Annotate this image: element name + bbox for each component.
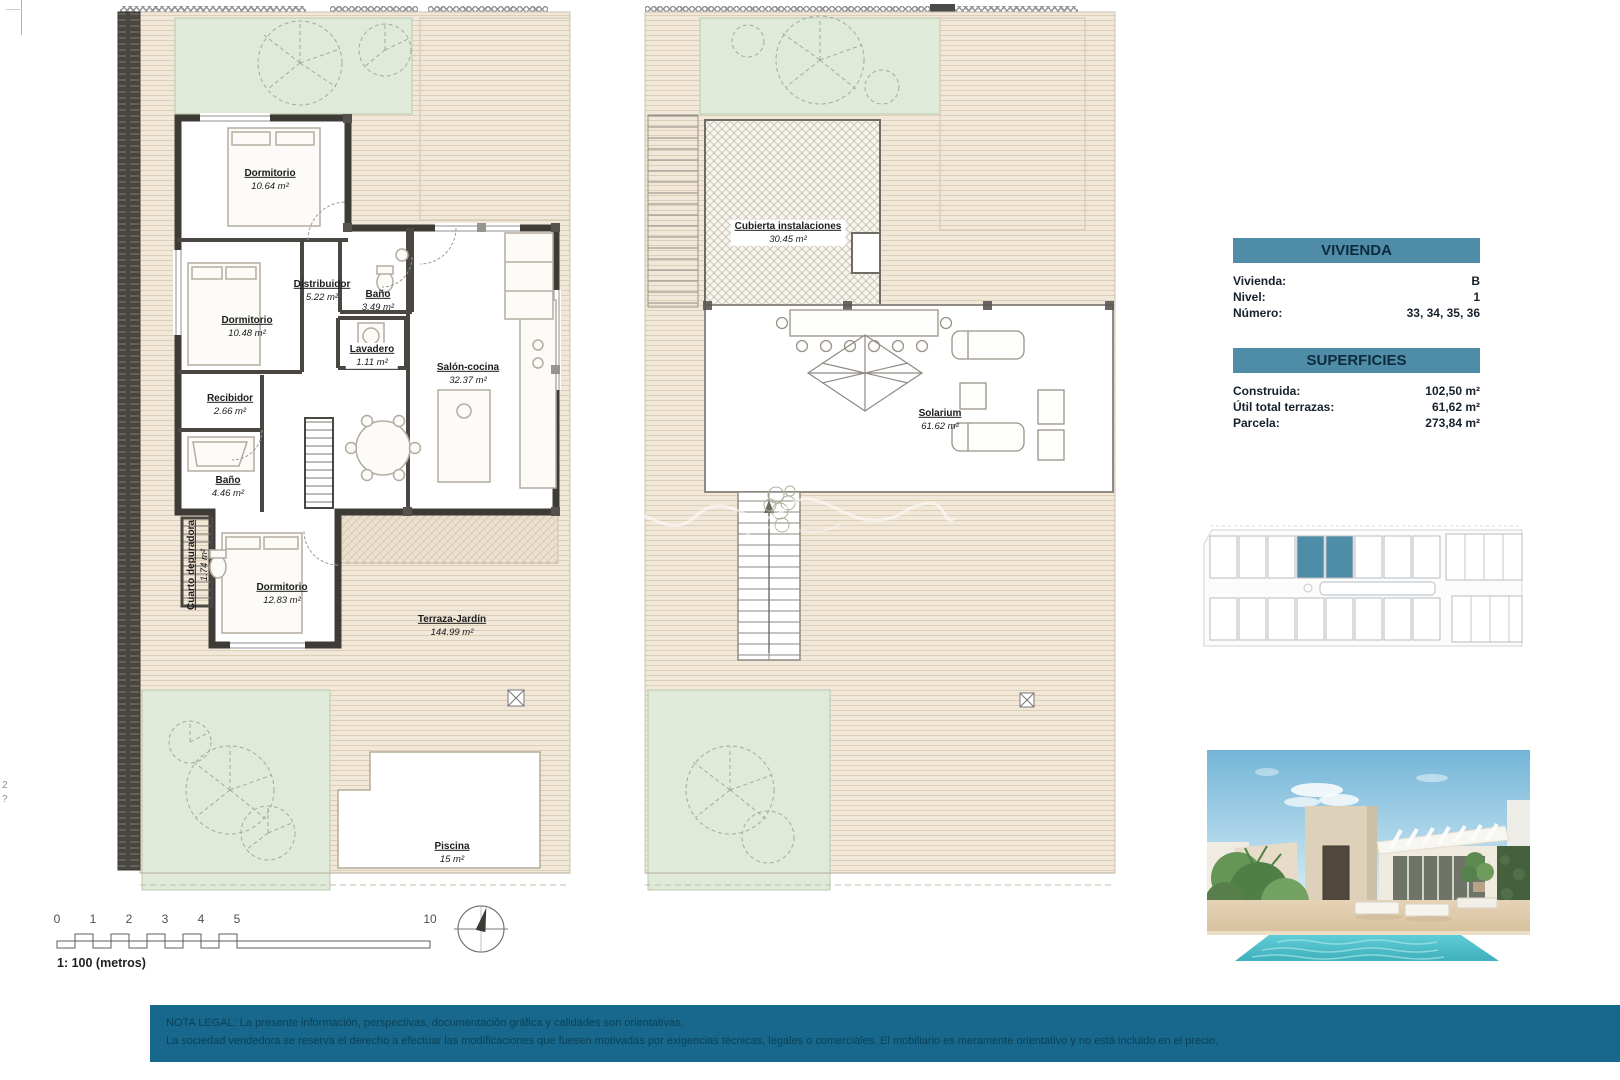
room-label-recibidor: Recibidor 2.66 m²	[207, 393, 253, 417]
site-plan	[1200, 518, 1530, 655]
room-area: 61.62 m²	[919, 420, 962, 432]
row-value: 273,84 m²	[1425, 416, 1480, 430]
villa-render-photo	[1207, 750, 1530, 961]
row-label: Nivel:	[1233, 290, 1266, 304]
room-area: 5.22 m²	[294, 291, 351, 303]
scale-tick: 10	[423, 912, 436, 926]
scale-tick: 1	[90, 912, 97, 926]
room-label-piscina: Piscina 15 m²	[434, 841, 469, 865]
watermark	[600, 478, 960, 558]
row-label: Construida:	[1233, 384, 1300, 398]
scale-bar: 0 1 2 3 4 5 10 1: 100 (metros)	[50, 912, 450, 976]
garden-bottom	[142, 690, 330, 890]
drain-icon	[508, 690, 524, 706]
room-name: Terraza-Jardín	[418, 614, 486, 627]
garden-bottom	[648, 690, 830, 890]
superficies-row: Parcela: 273,84 m²	[1233, 416, 1480, 432]
row-value: B	[1471, 274, 1480, 288]
room-label-bano-2: Baño 4.46 m²	[212, 475, 244, 499]
room-area: 144.99 m²	[418, 626, 486, 638]
room-label-cubierta: Cubierta instalaciones 30.45 m²	[731, 220, 846, 246]
planter-strip	[648, 115, 698, 307]
room-area: 10.48 m²	[221, 327, 272, 339]
scale-tick: 2	[126, 912, 133, 926]
room-name: Dormitorio	[244, 168, 295, 181]
row-value: 1	[1473, 290, 1480, 304]
vivienda-header: VIVIENDA	[1233, 238, 1480, 263]
row-label: Vivienda:	[1233, 274, 1286, 288]
site-unit-highlighted	[1326, 536, 1353, 578]
room-label-distribuidor: Distribuidor 5.22 m²	[294, 279, 351, 303]
row-label: Número:	[1233, 306, 1282, 320]
room-name: Piscina	[434, 841, 469, 854]
room-name: Solarium	[919, 408, 962, 421]
vivienda-row: Número: 33, 34, 35, 36	[1233, 306, 1480, 322]
room-label-terraza-jardin: Terraza-Jardín 144.99 m²	[418, 614, 486, 638]
row-value: 33, 34, 35, 36	[1407, 306, 1480, 320]
room-area: 1.74 m²	[198, 520, 210, 610]
vivienda-row: Nivel: 1	[1233, 290, 1480, 306]
room-label-bano-1: Baño 3.49 m²	[362, 289, 394, 313]
superficies-row: Útil total terrazas: 61,62 m²	[1233, 400, 1480, 416]
room-label-cuarto-depuradora: Cuarto depuradora 1.74 m²	[186, 520, 210, 610]
room-name: Salón-cocina	[437, 362, 499, 375]
room-label-dormitorio-3: Dormitorio 12.83 m²	[256, 582, 307, 606]
page-edge-artifact: 2	[2, 780, 8, 791]
room-area: 3.49 m²	[362, 301, 394, 313]
room-name: Distribuidor	[294, 279, 351, 292]
drain-icon	[1020, 693, 1034, 707]
scale-bar-graphic	[50, 930, 450, 952]
row-label: Parcela:	[1233, 416, 1280, 430]
vivienda-row: Vivienda: B	[1233, 274, 1480, 290]
room-label-lavadero: Lavadero 1.11 m²	[346, 343, 398, 369]
scale-caption: 1: 100 (metros)	[57, 956, 146, 970]
row-value: 61,62 m²	[1432, 400, 1480, 414]
cubierta-instalaciones	[705, 120, 880, 310]
room-name: Baño	[212, 475, 244, 488]
site-unit-highlighted	[1297, 536, 1324, 578]
room-area: 32.37 m²	[437, 374, 499, 386]
solarium-floor-plan	[630, 5, 1130, 905]
side-passage	[118, 12, 140, 870]
stairs	[305, 418, 333, 508]
scale-tick: 3	[162, 912, 169, 926]
room-area: 30.45 m²	[735, 233, 842, 245]
legal-line-1: NOTA LEGAL: La presente información, per…	[166, 1017, 684, 1029]
room-name: Dormitorio	[256, 582, 307, 595]
north-indicator-icon	[452, 900, 510, 958]
legal-line-2: La sociedad vendedora se reserva el dere…	[166, 1035, 1218, 1047]
scale-tick: 0	[54, 912, 61, 926]
roof-hatch	[852, 233, 880, 273]
page: 2 ?	[0, 0, 1620, 1080]
legal-note-bar: NOTA LEGAL: La presente información, per…	[150, 1005, 1620, 1062]
room-name: Cuarto depuradora	[186, 520, 199, 610]
room-area: 15 m²	[434, 853, 469, 865]
row-label: Útil total terrazas:	[1233, 400, 1334, 414]
row-value: 102,50 m²	[1425, 384, 1480, 398]
room-area: 4.46 m²	[212, 487, 244, 499]
scale-tick: 5	[234, 912, 241, 926]
print-margin-mark	[21, 0, 22, 35]
deck-top	[420, 18, 570, 220]
scale-tick: 4	[198, 912, 205, 926]
room-label-salon-cocina: Salón-cocina 32.37 m²	[437, 362, 499, 386]
room-label-solarium: Solarium 61.62 m²	[919, 408, 962, 432]
print-margin-mark	[6, 9, 20, 10]
room-label-dormitorio-1: Dormitorio 10.64 m²	[244, 168, 295, 192]
deck-top	[940, 18, 1085, 230]
garden-top	[175, 18, 412, 114]
room-name: Cubierta instalaciones	[735, 221, 842, 234]
room-area: 10.64 m²	[244, 180, 295, 192]
room-name: Lavadero	[350, 344, 394, 357]
room-name: Recibidor	[207, 393, 253, 406]
page-edge-artifact: ?	[2, 794, 8, 805]
room-area: 1.11 m²	[350, 356, 394, 368]
room-name: Dormitorio	[221, 315, 272, 328]
room-label-dormitorio-2: Dormitorio 10.48 m²	[221, 315, 272, 339]
ground-floor-plan	[40, 5, 580, 905]
room-area: 12.83 m²	[256, 594, 307, 606]
room-area: 2.66 m²	[207, 405, 253, 417]
superficies-row: Construida: 102,50 m²	[1233, 384, 1480, 400]
garden-top	[700, 16, 940, 114]
room-name: Baño	[362, 289, 394, 302]
superficies-header: SUPERFICIES	[1233, 348, 1480, 373]
